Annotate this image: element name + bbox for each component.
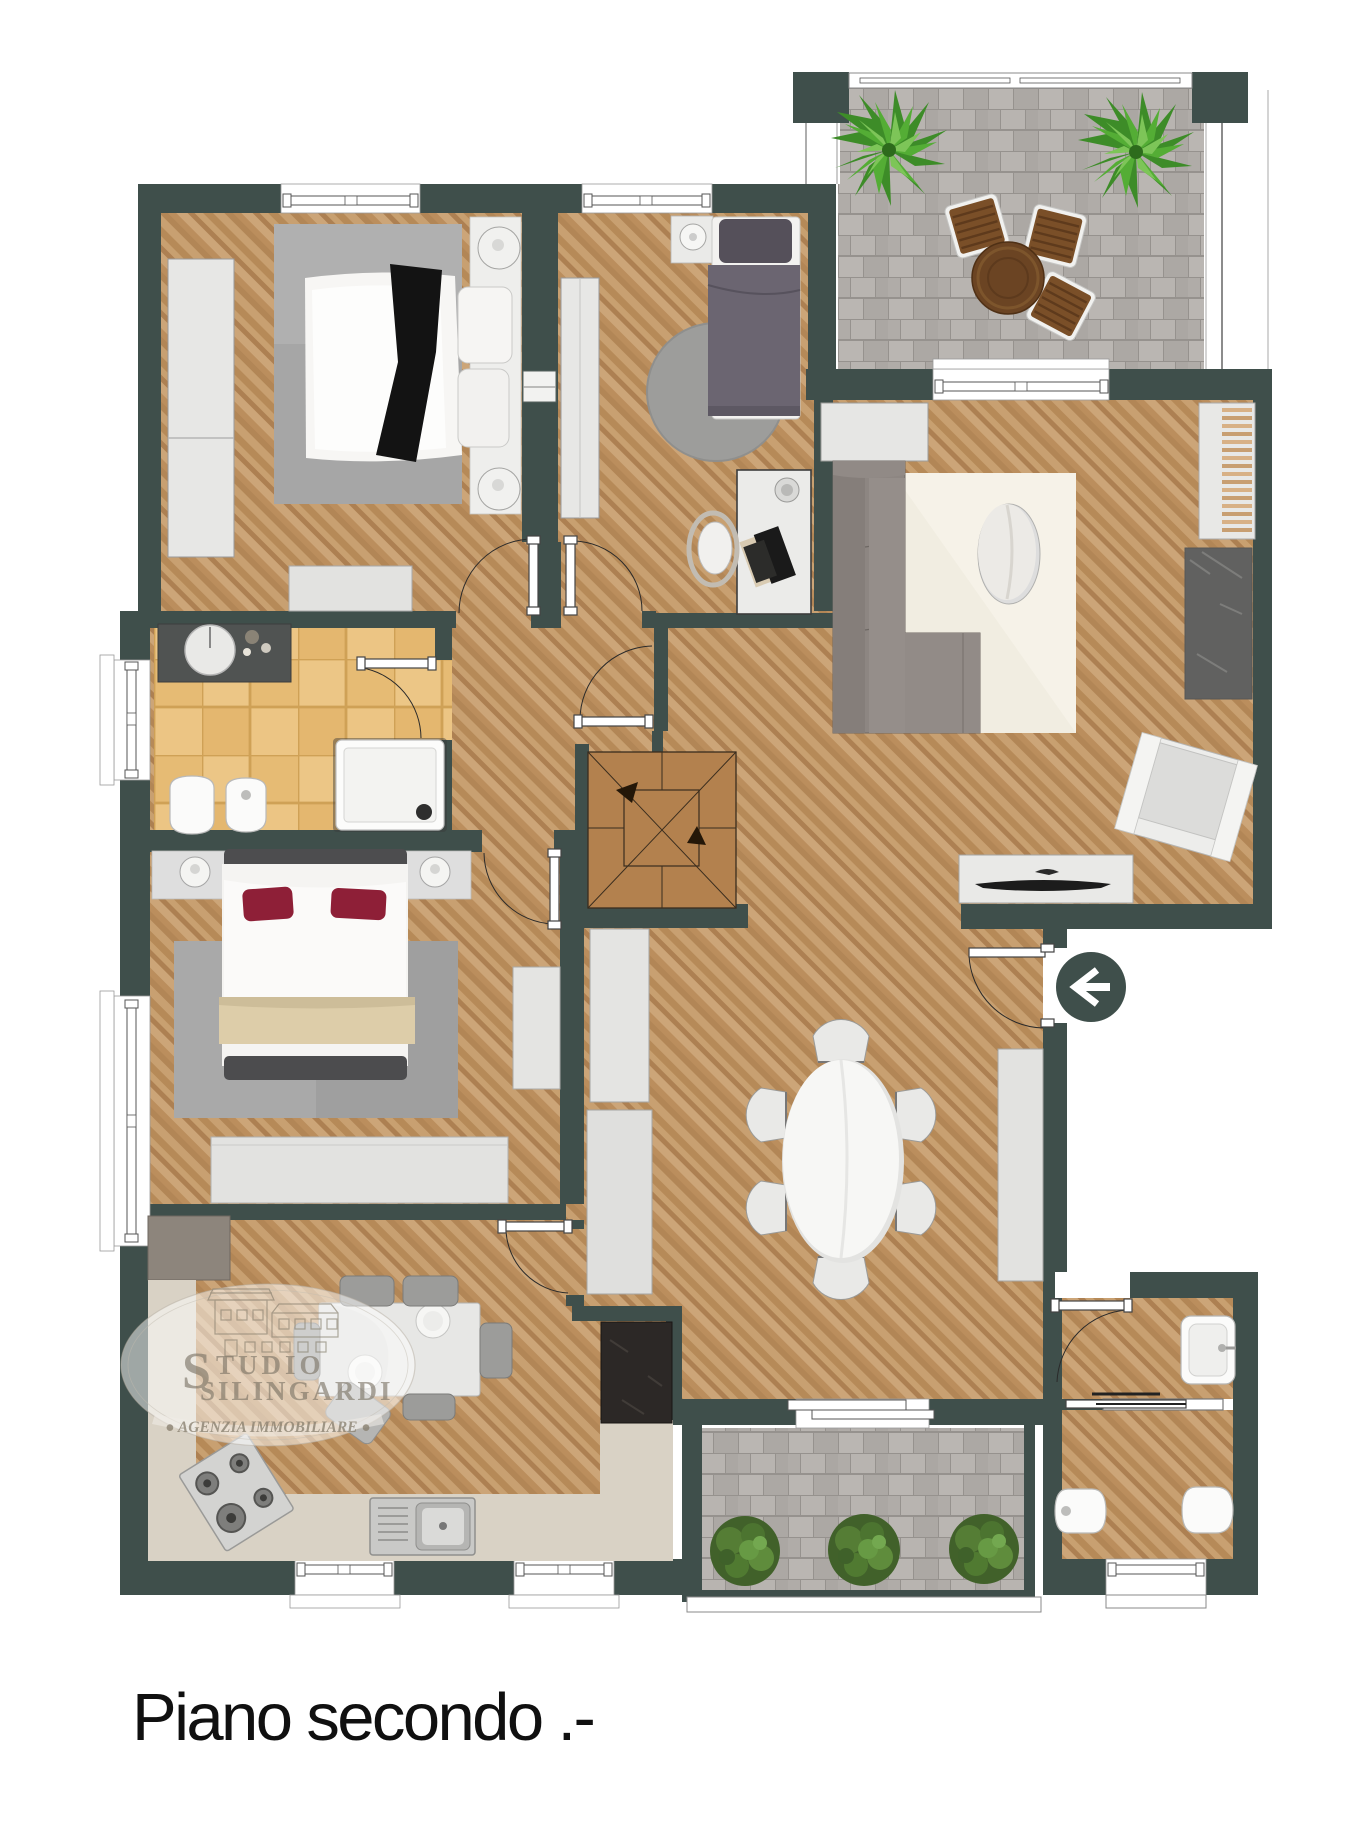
svg-text:SILINGARDI: SILINGARDI bbox=[200, 1376, 394, 1406]
svg-text:● AGENZIA IMMOBILIARE ●: ● AGENZIA IMMOBILIARE ● bbox=[165, 1419, 371, 1436]
svg-text:Piano secondo .-: Piano secondo .- bbox=[132, 1680, 594, 1755]
